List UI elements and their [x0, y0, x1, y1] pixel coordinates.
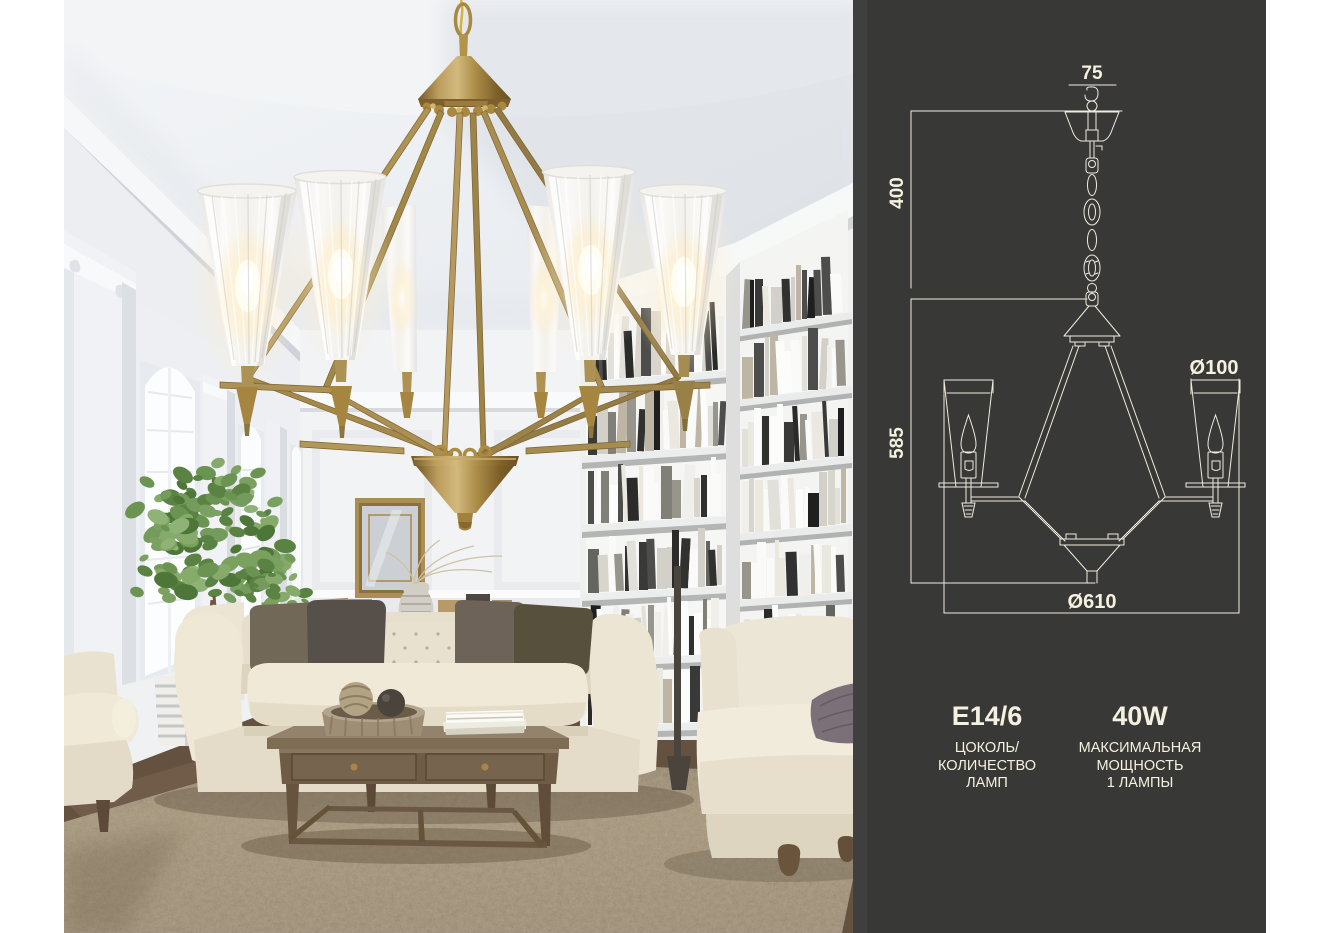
svg-text:400: 400 [887, 177, 908, 209]
svg-text:КОЛИЧЕСТВО: КОЛИЧЕСТВО [938, 758, 1036, 774]
svg-text:МОЩНОСТЬ: МОЩНОСТЬ [1096, 758, 1183, 774]
svg-text:75: 75 [1081, 63, 1103, 84]
svg-text:1 ЛАМПЫ: 1 ЛАМПЫ [1107, 775, 1174, 791]
svg-text:ЛАМП: ЛАМП [966, 775, 1008, 791]
svg-text:Ø100: Ø100 [1190, 357, 1239, 379]
svg-text:МАКСИМАЛЬНАЯ: МАКСИМАЛЬНАЯ [1079, 740, 1202, 756]
svg-text:E14/6: E14/6 [952, 701, 1023, 731]
svg-text:585: 585 [887, 427, 908, 459]
svg-text:40W: 40W [1112, 701, 1168, 731]
svg-text:ЦОКОЛЬ/: ЦОКОЛЬ/ [955, 740, 1020, 756]
svg-text:Ø610: Ø610 [1068, 591, 1117, 613]
